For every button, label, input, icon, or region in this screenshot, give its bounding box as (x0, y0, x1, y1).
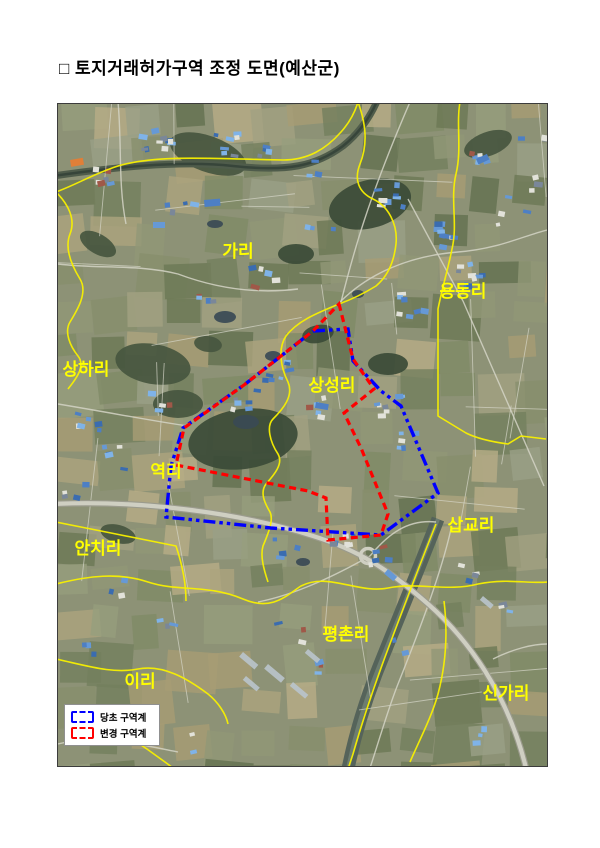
map-label-yongdongri: 용동리 (440, 282, 487, 301)
original-zone-swatch-icon (71, 711, 94, 723)
page-title: □ 토지거래허가구역 조정 도면(예산군) (59, 54, 340, 79)
satellite-map: 가리용동리상하리상성리역리삽교리안치리평촌리이리신가리 (58, 104, 547, 766)
map-label-pyeongchonri: 평촌리 (323, 625, 370, 644)
map-label-yeokri: 역리 (150, 462, 181, 481)
legend-label: 변경 구역계 (100, 726, 146, 740)
map-label-iri: 이리 (124, 672, 155, 691)
document-page: □ 토지거래허가구역 조정 도면(예산군) 가리용동리상하리상성리역리삽교리안치… (0, 0, 600, 848)
map-label-anchiri: 안치리 (75, 539, 122, 558)
map-legend: 당초 구역계 변경 구역계 (64, 704, 160, 746)
legend-label: 당초 구역계 (100, 710, 146, 724)
map-label-sapgyori: 삽교리 (448, 516, 495, 535)
legend-item-original: 당초 구역계 (71, 709, 154, 725)
map-label-sangseongri: 상성리 (309, 376, 356, 395)
map-label-singari: 신가리 (483, 684, 530, 703)
map-label-sanghari: 상하리 (63, 360, 110, 379)
terrain (58, 104, 547, 766)
changed-zone-swatch-icon (71, 727, 94, 739)
legend-item-changed: 변경 구역계 (71, 725, 154, 741)
map-image: 가리용동리상하리상성리역리삽교리안치리평촌리이리신가리 당초 구역계 변경 구역… (57, 103, 548, 767)
map-label-gari: 가리 (222, 242, 253, 261)
